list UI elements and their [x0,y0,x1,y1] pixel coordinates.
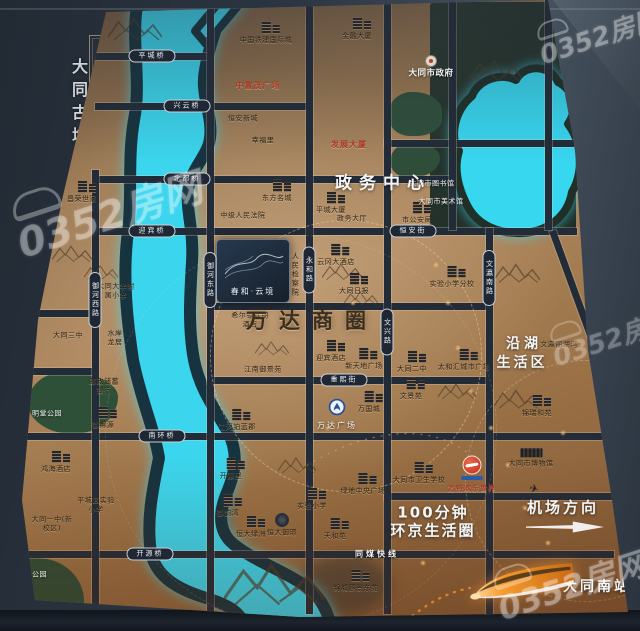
buildings-icon [331,518,340,530]
buildings-icon [227,458,236,470]
poi-weishengxuexiao: 大同市卫生学校 [393,462,446,484]
zone-lakeside-1: 沿湖 [506,333,542,353]
road-label-yonghe: 永和路 [303,247,316,294]
poi-taihehui: 太和汇城市广场 [438,349,491,371]
poi-bowuguan: 大同市博物馆 [509,448,554,467]
label-wanda-plaza: 万达广场 [317,421,357,431]
buildings-icon [359,473,368,485]
buildings-icon [448,266,457,278]
datong-city-map: 平城桥 兴云桥 北都桥 迎宾桥 恒安街 重熙街 南环桥 开源桥 同煤快线 御河西… [0,0,640,631]
bridge-label-kaiyuan: 开源桥 [127,548,174,561]
label-shizhengfu: 大同市政府 [408,69,453,80]
project-mountain-art [223,248,285,282]
bridge-label-yingbin: 迎宾桥 [129,225,176,238]
poi-changrong: 昌荣世家 [67,181,97,203]
zone-lakeside-2: 生活区 [497,352,548,372]
buildings-icon [99,407,108,419]
label-zhongjifayuan: 中级人民法院 [221,212,266,221]
street-label-chongxi: 重熙街 [321,374,368,387]
buildings-icon [327,340,336,352]
zone-airport-direction: 机场方向 [527,497,599,518]
bridge-label-nanhuan: 南环桥 [139,430,186,443]
label-fante: 方特欢乐世界 [448,485,496,494]
bridge-label-xingyun: 兴云桥 [164,100,211,113]
buildings-icon [407,378,416,390]
bridge-label-beidu: 北都桥 [164,173,211,186]
poi-wanguocheng: 万国城 [358,391,381,413]
project-block-chunhe-yunjing: 春和·云境 [216,239,290,303]
museum-building-icon [520,448,542,457]
label-jianchayuan: 人民检察院 [291,253,300,298]
poi-hengdalvzhou: 恒大绿洲 [236,516,266,538]
buildings-icon [308,488,317,500]
label-shuianlongju: 水岸龙居 [106,329,124,347]
buildings-icon [533,395,542,407]
road-label-wenying-south: 文瀛南路 [483,250,496,306]
label-jiangnan: 江南御景苑 [244,366,282,375]
poi-ribao: 大同日报 [339,273,369,295]
poi-yuyunwan: 御韵湾 [217,495,240,517]
wanda-logo-icon [329,399,346,416]
poi-jinruiheyuan: 锦瑞和苑 [522,395,552,417]
label-zhongzhimao: 中置茂广场 [236,81,281,91]
poi-erzhong: 大同二中 [397,351,427,373]
poi-lvdizhongyang: 绿地中央广场 [341,473,386,495]
buildings-icon [365,391,374,403]
buildings-icon [408,351,417,363]
label-mingtang-park: 明堂公园 [32,410,62,419]
bridge-label-pingcheng: 平城桥 [129,50,176,63]
buildings-icon [273,180,282,192]
buildings-icon [332,244,341,256]
buildings-icon [52,451,61,463]
zone-wanda-district: 万达商圈 [246,305,378,335]
poi-jinrong: 金融大厦 [342,18,372,40]
fantawild-banner-icon [461,476,483,480]
label-yizhong: 大同一中(新校区) [30,515,74,533]
label-xingfuli: 幸福里 [252,137,275,146]
poi-kaiyuanli: 开源里 [220,458,243,480]
poi-yungang-hotel: 云冈大酒店 [317,244,355,266]
poi-tianheyuan: 天和苑 [324,518,347,540]
hengda-badge-icon [275,513,289,527]
poi-zhongtiejian: 中国铁建国际城 [240,22,293,44]
road-label-yuhe-west: 御河西路 [89,272,102,328]
poi-wenjingyuan: 文景苑 [400,378,423,400]
poi-shiyanfenxiao: 实验小学分校 [430,266,475,288]
buildings-icon [460,349,469,361]
label-sanzhong: 大同三中 [53,332,83,341]
label-fazhandasha: 发展大厦 [331,140,367,150]
buildings-icon [353,18,362,30]
zone-minutes-2: 环京生活圈 [390,520,475,541]
road-label-wenxing: 文兴路 [381,309,394,356]
label-pingchengxiaoxue: 平城区实验小学 [75,496,117,514]
poi-shiyanxiaoxue: 实验小学 [297,488,327,510]
government-emblem-icon [425,55,437,67]
label-meishuguan: 大同市美术馆 [419,198,464,207]
buildings-icon [327,192,336,204]
label-hengdayujing: 恒大御璟 [267,529,297,538]
road-label-tongmei-express: 同煤快线 [355,549,399,560]
buildings-icon [415,462,424,474]
poi-xintiandi: 新天地广场 [345,348,383,370]
map-board-photo: 大同古城 [0,0,640,631]
buildings-icon [350,273,359,285]
poi-dongfangmingcheng: 东方名城 [262,180,292,202]
poi-honghai-hotel: 鸿海酒店 [41,451,71,473]
label-fuxiao: 大同大学附属小学 [96,282,136,300]
fantawild-logo-icon [463,456,482,475]
street-label-hengan: 恒安街 [390,225,437,238]
road-label-yuhe-east: 御河东路 [204,252,217,308]
label-wenyinglihuwan: 文瀛丽湖湾 [540,341,578,350]
buildings-icon [233,409,242,421]
poi-yujinyuan: 御锦源 [92,407,115,429]
buildings-icon [352,570,361,582]
buildings-icon [224,495,233,507]
buildings-icon [247,516,256,528]
buildings-icon [78,181,87,193]
poi-yingbin-hotel: 迎宾酒店 [316,340,346,362]
project-name-label: 春和·云境 [231,286,276,297]
buildings-icon [262,22,271,34]
poi-jinchengyuan: 锦城颐景东苑 [334,570,379,592]
poi-pingchengdasha: 平城大厦 [316,192,346,214]
label-henganxincheng: 恒安新城 [228,115,258,124]
poi-jianghe: 江河铂蓝郡 [218,409,256,431]
label-zhengwudating: 政务大厅 [337,215,367,224]
label-youzheng: 邮政储蓄银行 [88,377,120,395]
buildings-icon [360,348,369,360]
zone-government-center: 政务中心 [335,169,431,194]
